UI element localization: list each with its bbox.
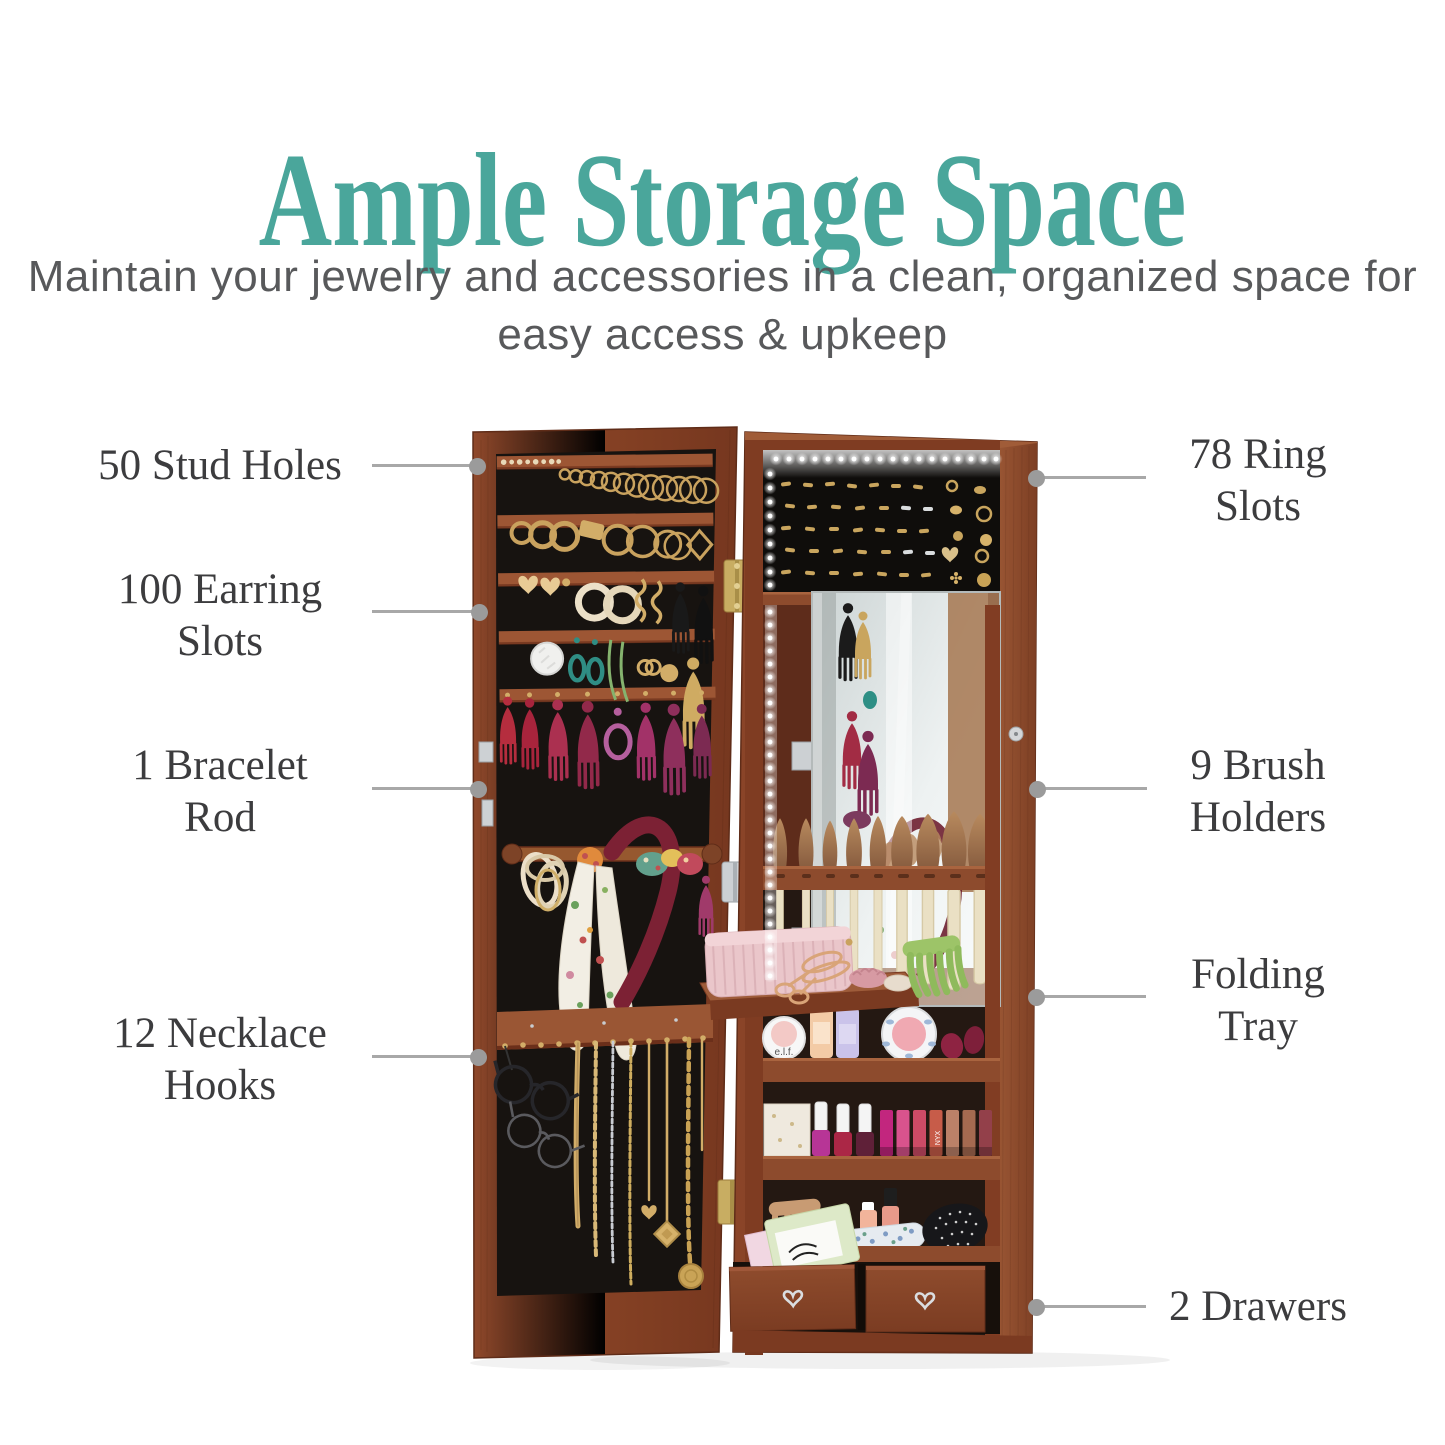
necklace-hook-bar <box>497 1004 713 1050</box>
callout-label-earring-slots: 100 Earring Slots <box>25 564 415 668</box>
callout-label-stud-holes: 50 Stud Holes <box>25 440 415 492</box>
callout-text: 100 Earring <box>25 564 415 616</box>
callout-label-folding-tray: Folding Tray <box>1063 949 1445 1053</box>
callout-dot-drawers <box>1028 1299 1045 1316</box>
callout-dot-stud-holes <box>469 458 486 475</box>
callout-text: 78 Ring <box>1063 429 1445 481</box>
callout-text: 50 Stud Holes <box>25 440 415 492</box>
callout-text: Slots <box>25 616 415 668</box>
lipstick-row: NYX <box>880 1110 992 1156</box>
left-door-panel <box>473 427 737 1358</box>
callout-line-bracelet-rod <box>372 787 478 790</box>
shelf1 <box>763 1058 1000 1082</box>
brush-holder-rail <box>763 866 1000 890</box>
ring-display <box>763 450 1003 605</box>
callout-text: Folding <box>1063 949 1445 1001</box>
callout-text: 9 Brush <box>1063 740 1445 792</box>
callout-line-folding-tray <box>1036 995 1146 998</box>
callout-text: Hooks <box>25 1060 415 1112</box>
nyx-logo-text: NYX <box>935 1130 942 1145</box>
drawer-left <box>729 1265 855 1332</box>
callout-label-brush-holders: 9 Brush Holders <box>1063 740 1445 844</box>
cabinet-body: e.l.f. <box>700 432 1037 1355</box>
callout-line-necklace-hooks <box>372 1055 478 1058</box>
led-strip-left <box>764 605 778 983</box>
callout-text: Holders <box>1063 792 1445 844</box>
subtitle-line-1: Maintain your jewelry and accessories in… <box>28 252 1009 301</box>
callout-dot-folding-tray <box>1028 989 1045 1006</box>
callout-text: Slots <box>1063 481 1445 533</box>
disc-pendant <box>679 1264 703 1288</box>
callout-dot-ring-slots <box>1028 470 1045 487</box>
callout-line-brush-holders <box>1037 787 1147 790</box>
callout-text: 12 Necklace <box>25 1008 415 1060</box>
elf-logo-text: e.l.f. <box>775 1047 794 1058</box>
callout-dot-necklace-hooks <box>470 1049 487 1066</box>
shelf2 <box>763 1156 1000 1180</box>
callout-dot-bracelet-rod <box>470 781 487 798</box>
callout-dot-brush-holders <box>1029 781 1046 798</box>
callout-text: Tray <box>1063 1001 1445 1053</box>
callout-text: Rod <box>25 792 415 844</box>
page-subtitle: Maintain your jewelry and accessories in… <box>0 248 1445 364</box>
drawer-right <box>866 1266 985 1332</box>
callout-label-necklace-hooks: 12 Necklace Hooks <box>25 1008 415 1112</box>
callout-dot-earring-slots <box>471 604 488 621</box>
callout-label-bracelet-rod: 1 Bracelet Rod <box>25 740 415 844</box>
callout-line-ring-slots <box>1036 476 1146 479</box>
callout-label-ring-slots: 78 Ring Slots <box>1063 429 1445 533</box>
infographic-page: e.l.f. <box>0 0 1445 1445</box>
callout-line-earring-slots <box>372 610 479 613</box>
callout-line-drawers <box>1036 1305 1146 1308</box>
callout-text: 1 Bracelet <box>25 740 415 792</box>
callout-line-stud-holes <box>372 464 478 467</box>
